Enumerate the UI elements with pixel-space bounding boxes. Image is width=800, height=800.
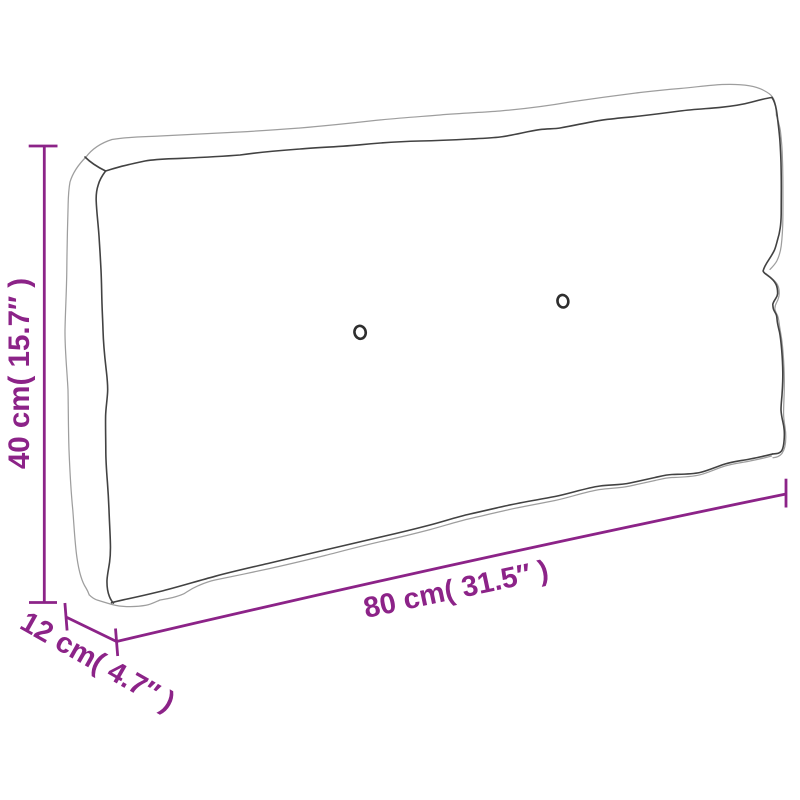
svg-text:40 cm( 15.7″ ): 40 cm( 15.7″ ): [3, 278, 36, 469]
